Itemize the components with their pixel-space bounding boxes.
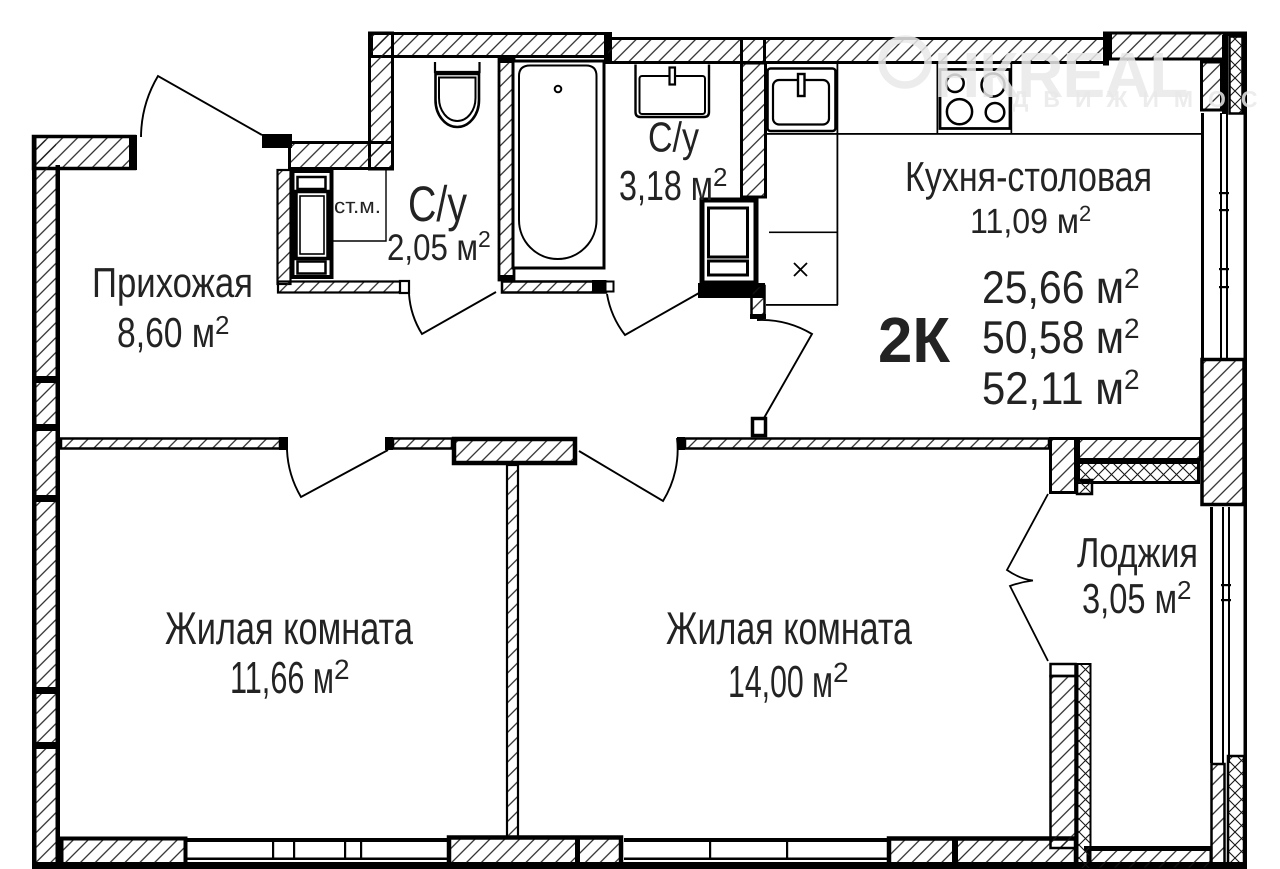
svg-text:2,05 м: 2,05 м [387, 227, 478, 268]
svg-text:С/у: С/у [648, 114, 699, 161]
svg-text:Прихожая: Прихожая [92, 259, 253, 306]
svg-text:ст.м.: ст.м. [334, 195, 381, 218]
svg-text:2: 2 [1079, 201, 1091, 226]
svg-text:С/у: С/у [408, 176, 467, 232]
svg-text:Жилая комната: Жилая комната [666, 602, 912, 654]
svg-text:50,58 м: 50,58 м [982, 311, 1124, 363]
svg-text:2: 2 [1124, 263, 1140, 294]
svg-text:2К: 2К [878, 304, 951, 376]
svg-text:2: 2 [478, 226, 491, 252]
svg-text:2: 2 [833, 657, 849, 688]
svg-text:Лоджия: Лоджия [1077, 529, 1198, 576]
svg-text:2: 2 [1177, 575, 1191, 605]
svg-text:11,66 м: 11,66 м [230, 652, 334, 703]
svg-text:Жилая комната: Жилая комната [165, 602, 413, 654]
svg-text:3,18 м: 3,18 м [619, 162, 713, 209]
svg-text:25,66 м: 25,66 м [982, 261, 1124, 313]
svg-text:2: 2 [713, 162, 727, 192]
svg-text:2: 2 [1124, 313, 1140, 344]
svg-text:14,00 м: 14,00 м [728, 656, 833, 707]
svg-text:52,11 м: 52,11 м [982, 362, 1124, 414]
svg-text:11,09 м: 11,09 м [970, 202, 1079, 241]
svg-text:2: 2 [334, 654, 350, 685]
svg-text:ДВИЖИМОС: ДВИЖИМОС [1012, 86, 1273, 112]
svg-text:8,60 м: 8,60 м [117, 309, 215, 356]
svg-text:2: 2 [215, 310, 229, 340]
svg-text:2: 2 [1124, 364, 1140, 395]
svg-text:Кухня-столовая: Кухня-столовая [905, 153, 1152, 200]
svg-text:3,05 м: 3,05 м [1082, 575, 1177, 622]
